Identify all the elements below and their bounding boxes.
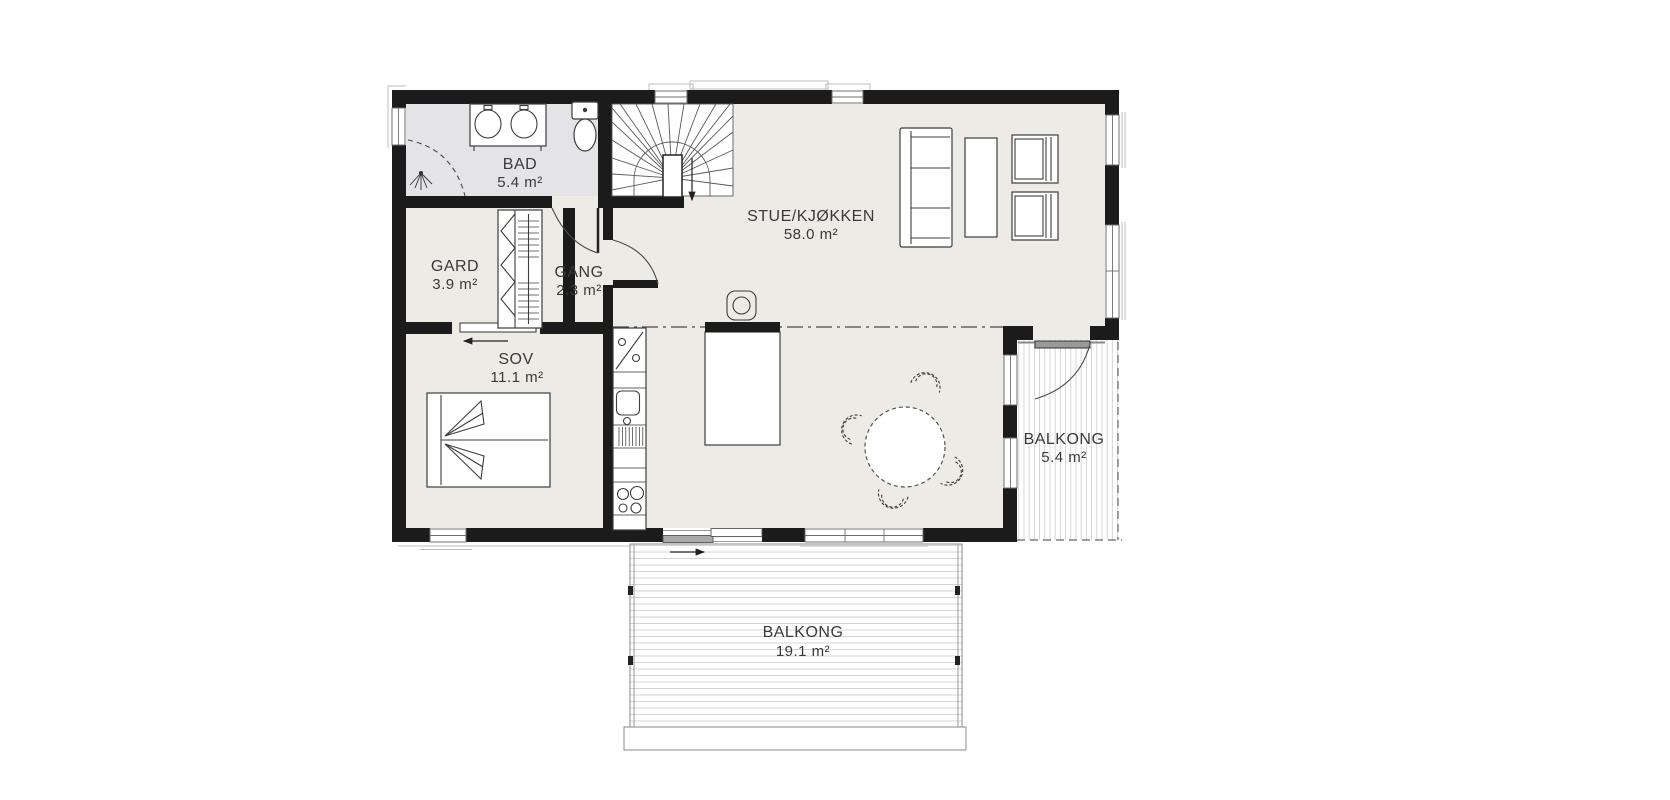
bed-symbol [427, 393, 550, 487]
stair-newel [663, 155, 682, 197]
toilet-symbol [572, 102, 598, 151]
balcony-step [624, 727, 966, 750]
room-area-balkong-front: 19.1 m² [776, 643, 830, 660]
deck-post [955, 656, 960, 665]
room-label-sov: SOV [498, 351, 533, 368]
room-label-stue: STUE/KJØKKEN [747, 208, 875, 225]
room-label-gang: GANG [554, 264, 603, 281]
sofa-symbol [900, 128, 952, 247]
room-label-bad: BAD [503, 156, 537, 173]
room-area-sov: 11.1 m² [490, 369, 543, 386]
room-label-gard: GARD [431, 258, 479, 275]
room-label-balkong-front: BALKONG [763, 624, 844, 641]
room-area-bad: 5.4 m² [497, 174, 543, 191]
room-area-stue: 58.0 m² [784, 226, 838, 243]
kitchen-counter-symbol [613, 328, 646, 530]
room-label-balkong-side: BALKONG [1024, 431, 1105, 448]
armchair-symbol [1012, 192, 1058, 240]
double-sink-symbol [470, 104, 546, 151]
floor-plan: BAD 5.4 m² GARD 3.9 m² GANG 2.3 m² SOV 1… [0, 0, 1670, 800]
deck-post [628, 586, 633, 595]
room-area-gang: 2.3 m² [556, 282, 602, 299]
room-area-gard: 3.9 m² [432, 276, 478, 293]
deck-post [955, 586, 960, 595]
deck-post [628, 656, 633, 665]
room-area-balkong-side: 5.4 m² [1041, 449, 1087, 466]
armchair-symbol [1012, 135, 1058, 183]
wardrobe-symbol [498, 210, 542, 328]
coffee-table-symbol [965, 138, 997, 237]
